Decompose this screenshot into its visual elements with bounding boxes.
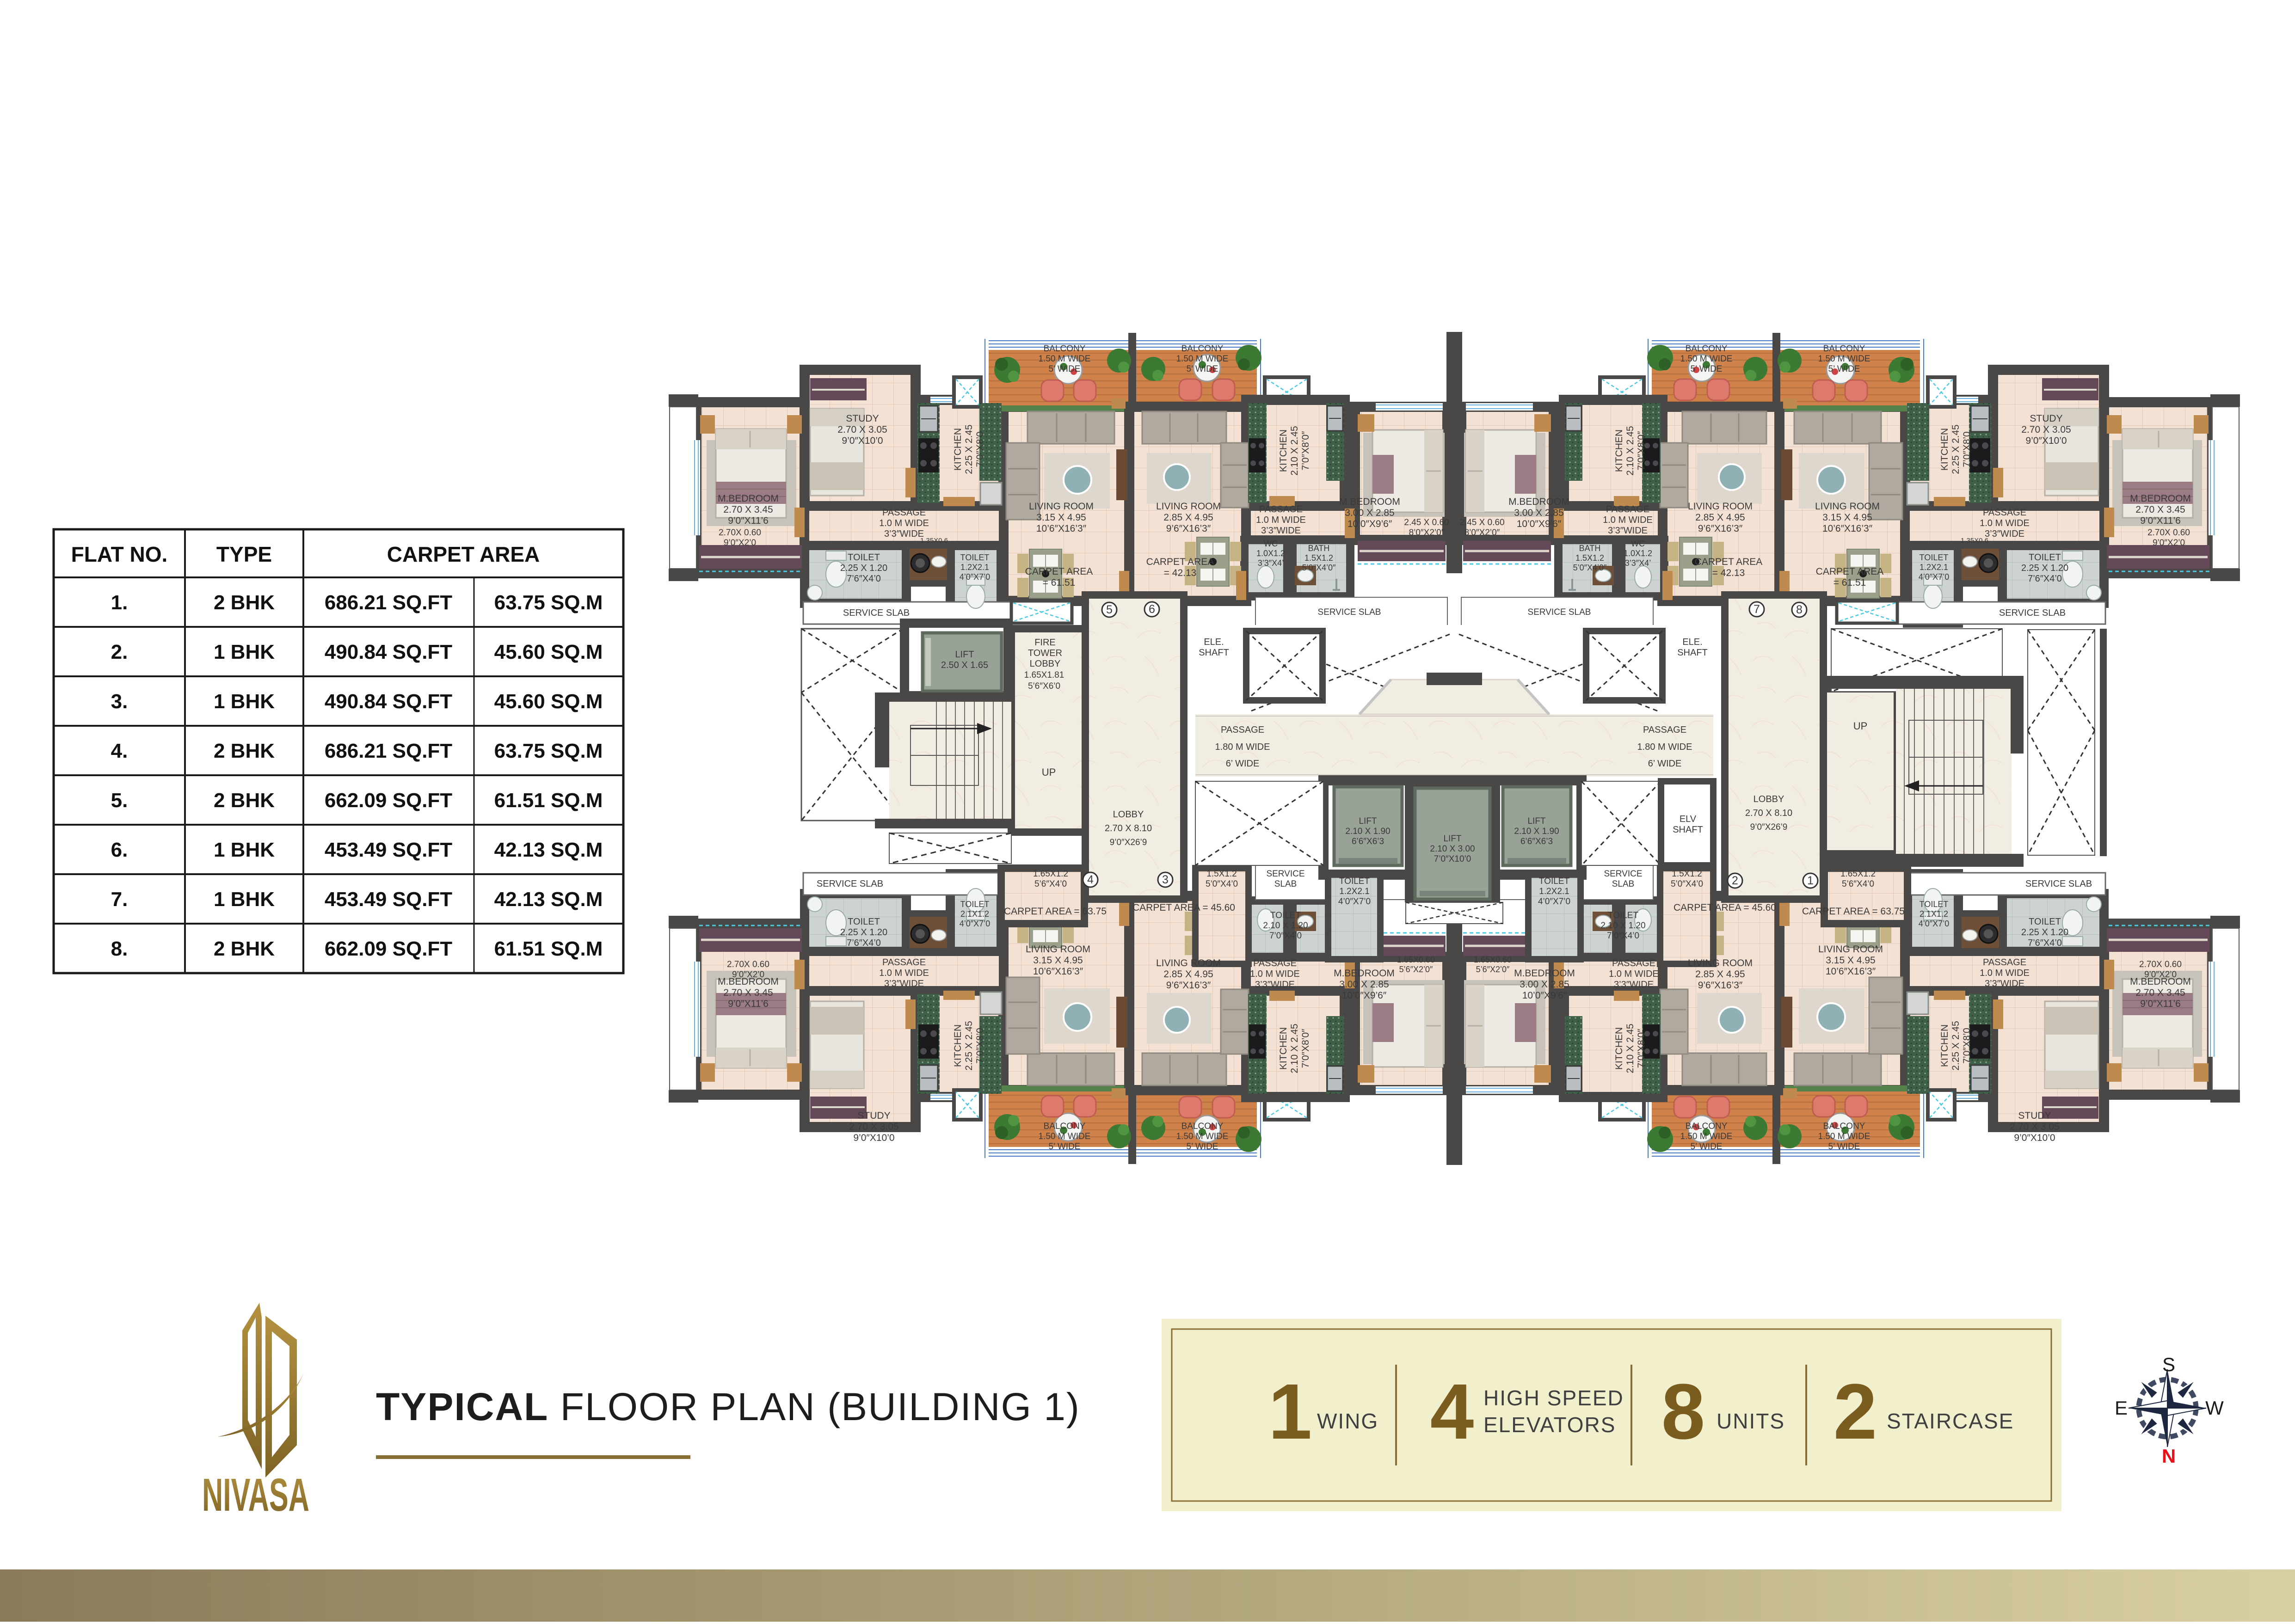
svg-text:KITCHEN2.10 X 2.457’0″X8’0″: KITCHEN2.10 X 2.457’0″X8’0″ — [1614, 426, 1647, 475]
svg-text:KITCHEN2.25 X 2.457’0″X8’0: KITCHEN2.25 X 2.457’0″X8’0 — [953, 1021, 985, 1070]
svg-text:FLAT NO.: FLAT NO. — [71, 542, 168, 566]
svg-text:1.: 1. — [111, 591, 128, 614]
svg-text:61.51 SQ.M: 61.51 SQ.M — [494, 789, 603, 812]
svg-text:PASSAGE1.0 M WIDE3’3″WIDE: PASSAGE1.0 M WIDE3’3″WIDE — [879, 508, 929, 539]
svg-text:PASSAGE: PASSAGE — [1643, 725, 1686, 735]
svg-text:SERVICE SLAB: SERVICE SLAB — [817, 879, 883, 889]
svg-text:HIGH SPEED: HIGH SPEED — [1483, 1386, 1624, 1410]
svg-text:SERVICE SLAB: SERVICE SLAB — [843, 608, 910, 618]
svg-text:42.13 SQ.M: 42.13 SQ.M — [494, 839, 603, 861]
svg-text:PASSAGE1.0 M WIDE3’3″WIDE: PASSAGE1.0 M WIDE3’3″WIDE — [879, 957, 929, 989]
svg-text:SERVICE SLAB: SERVICE SLAB — [1999, 608, 2066, 618]
svg-text:6’ WIDE: 6’ WIDE — [1648, 759, 1682, 769]
svg-text:8: 8 — [1796, 603, 1803, 616]
svg-text:5’6″X6’0: 5’6″X6’0 — [1028, 681, 1060, 691]
svg-text:PASSAGE1.0 M WIDE3’3″WIDE: PASSAGE1.0 M WIDE3’3″WIDE — [1980, 957, 2030, 989]
svg-text:1 BHK: 1 BHK — [214, 641, 275, 663]
svg-text:STAIRCASE: STAIRCASE — [1887, 1409, 2014, 1433]
svg-text:M.BEDROOM3.00 X 2.8510’0″X9’6″: M.BEDROOM3.00 X 2.8510’0″X9’6″ — [1508, 496, 1569, 529]
svg-text:2.70 X 8.10: 2.70 X 8.10 — [1105, 823, 1152, 833]
svg-text:2.70X 0.609’0″X2’0: 2.70X 0.609’0″X2’0 — [719, 528, 761, 548]
svg-text:PASSAGE1.0 M WIDE3’3″WIDE: PASSAGE1.0 M WIDE3’3″WIDE — [1603, 504, 1653, 536]
svg-text:5.: 5. — [111, 789, 128, 812]
svg-text:KITCHEN2.10 X 2.457’0″X8’0″: KITCHEN2.10 X 2.457’0″X8’0″ — [1278, 1023, 1311, 1073]
svg-text:2: 2 — [1732, 874, 1738, 887]
svg-text:662.09 SQ.FT: 662.09 SQ.FT — [325, 938, 452, 960]
svg-text:1.65X1.25’6″X4’0: 1.65X1.25’6″X4’0 — [1033, 869, 1068, 889]
svg-text:8: 8 — [1661, 1368, 1705, 1456]
svg-text:UNITS: UNITS — [1717, 1409, 1785, 1433]
svg-text:1.35X0.6: 1.35X0.6 — [1961, 537, 1988, 545]
svg-text:WING: WING — [1317, 1409, 1378, 1433]
svg-text:M.BEDROOM3.00 X 2.8510’0″X9’6″: M.BEDROOM3.00 X 2.8510’0″X9’6″ — [1334, 968, 1395, 1001]
svg-text:63.75 SQ.M: 63.75 SQ.M — [494, 591, 603, 614]
svg-text:PASSAGE1.0 M WIDE3’3″WIDE: PASSAGE1.0 M WIDE3’3″WIDE — [1256, 504, 1306, 536]
svg-text:3.: 3. — [111, 690, 128, 713]
svg-text:ELEVATORS: ELEVATORS — [1483, 1413, 1616, 1437]
svg-text:LIVING ROOM3.15 X 4.9510’6″X16: LIVING ROOM3.15 X 4.9510’6″X16’3″ — [1818, 944, 1883, 977]
svg-text:2 BHK: 2 BHK — [214, 938, 275, 960]
svg-text:63.75 SQ.M: 63.75 SQ.M — [494, 740, 603, 762]
svg-text:1.65X0.605’6″X2’0″: 1.65X0.605’6″X2’0″ — [1397, 955, 1435, 974]
svg-text:453.49 SQ.FT: 453.49 SQ.FT — [325, 839, 452, 861]
svg-text:9’0″X26’9: 9’0″X26’9 — [1750, 822, 1788, 832]
svg-text:1 BHK: 1 BHK — [214, 839, 275, 861]
svg-text:TOILET1.2X2.14’0″X7’0: TOILET1.2X2.14’0″X7’0 — [1538, 876, 1570, 907]
svg-text:1.65X1.81: 1.65X1.81 — [1024, 670, 1064, 680]
svg-text:PASSAGE: PASSAGE — [1221, 725, 1264, 735]
svg-text:1.5X1.25’0″X4’0: 1.5X1.25’0″X4’0 — [1671, 869, 1703, 889]
svg-text:2 BHK: 2 BHK — [214, 740, 275, 762]
svg-text:TOILET2.1X1.24’0″X7’0: TOILET2.1X1.24’0″X7’0 — [960, 900, 990, 928]
svg-text:PASSAGE1.0 M WIDE3’3″WIDE: PASSAGE1.0 M WIDE3’3″WIDE — [1609, 958, 1659, 990]
svg-text:1 BHK: 1 BHK — [214, 690, 275, 713]
svg-text:LOBBY: LOBBY — [1754, 794, 1784, 804]
svg-text:686.21 SQ.FT: 686.21 SQ.FT — [325, 591, 452, 614]
svg-text:S: S — [2162, 1354, 2175, 1375]
svg-text:CARPET AREA = 45.60: CARPET AREA = 45.60 — [1674, 902, 1776, 913]
svg-text:1.5X1.25’0″X4’0: 1.5X1.25’0″X4’0 — [1206, 869, 1238, 889]
svg-text:4.: 4. — [111, 740, 128, 762]
svg-text:KITCHEN2.25 X 2.457’0″X8’0: KITCHEN2.25 X 2.457’0″X8’0 — [953, 424, 985, 474]
svg-text:KITCHEN2.10 X 2.457’0″X8’0″: KITCHEN2.10 X 2.457’0″X8’0″ — [1614, 1023, 1647, 1073]
svg-text:61.51 SQ.M: 61.51 SQ.M — [494, 938, 603, 960]
svg-text:SERVICE SLAB: SERVICE SLAB — [1528, 607, 1591, 617]
svg-text:3: 3 — [1162, 873, 1169, 886]
svg-text:CARPET AREA = 45.60: CARPET AREA = 45.60 — [1132, 902, 1235, 913]
svg-text:4: 4 — [1087, 873, 1094, 886]
svg-text:CARPET AREA = 63.75: CARPET AREA = 63.75 — [1004, 906, 1107, 917]
svg-text:2 BHK: 2 BHK — [214, 591, 275, 614]
svg-text:PASSAGE1.0 M WIDE3’3″WIDE: PASSAGE1.0 M WIDE3’3″WIDE — [1980, 508, 2030, 539]
svg-text:W: W — [2205, 1397, 2224, 1419]
svg-text:5: 5 — [1106, 603, 1113, 616]
svg-text:TYPICAL FLOOR PLAN (BUILDING 1: TYPICAL FLOOR PLAN (BUILDING 1) — [376, 1385, 1080, 1428]
svg-text:KITCHEN2.25 X 2.457’0″X8’0: KITCHEN2.25 X 2.457’0″X8’0 — [1939, 1021, 1972, 1070]
svg-text:CARPET AREA = 63.75: CARPET AREA = 63.75 — [1802, 906, 1905, 917]
svg-text:453.49 SQ.FT: 453.49 SQ.FT — [325, 888, 452, 911]
svg-text:LOBBY: LOBBY — [1113, 809, 1144, 820]
svg-text:1: 1 — [1268, 1368, 1312, 1456]
svg-text:M.BEDROOM3.00 X 2.8510’0″X9’6″: M.BEDROOM3.00 X 2.8510’0″X9’6″ — [1339, 496, 1400, 529]
svg-text:2.70X 0.609’0″X2’0: 2.70X 0.609’0″X2’0 — [2147, 528, 2190, 548]
svg-text:686.21 SQ.FT: 686.21 SQ.FT — [325, 740, 452, 762]
svg-text:CARPET AREA: CARPET AREA — [387, 542, 540, 566]
svg-text:6’ WIDE: 6’ WIDE — [1226, 759, 1260, 769]
svg-text:7: 7 — [1754, 603, 1760, 616]
svg-text:1: 1 — [1807, 874, 1814, 887]
svg-text:TYPE: TYPE — [216, 542, 272, 566]
svg-text:KITCHEN2.25 X 2.457’0″X8’0: KITCHEN2.25 X 2.457’0″X8’0 — [1939, 424, 1972, 474]
svg-text:7.: 7. — [111, 888, 128, 911]
svg-text:490.84 SQ.FT: 490.84 SQ.FT — [325, 641, 452, 663]
svg-text:9’0″X26’9: 9’0″X26’9 — [1110, 838, 1147, 847]
svg-text:LIVING ROOM3.15 X 4.9510’6″X16: LIVING ROOM3.15 X 4.9510’6″X16’3″ — [1815, 501, 1880, 534]
svg-text:NIVASA: NIVASA — [202, 1469, 309, 1521]
svg-text:2: 2 — [1834, 1368, 1877, 1456]
svg-text:UP: UP — [1042, 766, 1056, 778]
svg-text:2 BHK: 2 BHK — [214, 789, 275, 812]
svg-text:SERVICE SLAB: SERVICE SLAB — [1318, 607, 1381, 617]
svg-text:2.70 X 8.10: 2.70 X 8.10 — [1745, 808, 1792, 818]
svg-text:1.35X0.6: 1.35X0.6 — [920, 537, 948, 545]
svg-text:490.84 SQ.FT: 490.84 SQ.FT — [325, 690, 452, 713]
svg-text:N: N — [2162, 1445, 2176, 1467]
svg-text:6.: 6. — [111, 839, 128, 861]
svg-text:TOILET1.2X2.14’0″X7’0: TOILET1.2X2.14’0″X7’0 — [1338, 876, 1371, 907]
svg-text:2.45 X 0.608’0″X2’0″: 2.45 X 0.608’0″X2’0″ — [1459, 518, 1504, 538]
svg-text:42.13 SQ.M: 42.13 SQ.M — [494, 888, 603, 911]
svg-text:1 BHK: 1 BHK — [214, 888, 275, 911]
svg-text:1.65X1.25’6″X4’0: 1.65X1.25’6″X4’0 — [1840, 869, 1876, 889]
svg-text:UP: UP — [1853, 720, 1868, 732]
svg-text:LIVING ROOM3.15 X 4.9510’6″X16: LIVING ROOM3.15 X 4.9510’6″X16’3″ — [1029, 501, 1094, 534]
svg-text:SERVICE SLAB: SERVICE SLAB — [2025, 879, 2092, 889]
svg-text:6: 6 — [1149, 603, 1155, 616]
svg-text:4: 4 — [1430, 1368, 1474, 1456]
svg-text:KITCHEN2.10 X 2.457’0″X8’0″: KITCHEN2.10 X 2.457’0″X8’0″ — [1278, 426, 1311, 475]
svg-text:662.09 SQ.FT: 662.09 SQ.FT — [325, 789, 452, 812]
svg-text:TOILET1.2X2.14’0″X7’0: TOILET1.2X2.14’0″X7’0 — [1919, 553, 1949, 582]
svg-text:TOILET2.1X1.24’0″X7’0: TOILET2.1X1.24’0″X7’0 — [1919, 900, 1949, 928]
svg-text:1.65X0.605’6″X2’0″: 1.65X0.605’6″X2’0″ — [1474, 955, 1512, 974]
svg-text:LIVING ROOM3.15 X 4.9510’6″X16: LIVING ROOM3.15 X 4.9510’6″X16’3″ — [1026, 944, 1090, 977]
svg-text:1.80 M WIDE: 1.80 M WIDE — [1215, 742, 1270, 752]
svg-text:M.BEDROOM3.00 X 2.8510’0″X9’6″: M.BEDROOM3.00 X 2.8510’0″X9’6″ — [1514, 968, 1575, 1001]
svg-text:2.45 X 0.608’0″X2’0″: 2.45 X 0.608’0″X2’0″ — [1404, 518, 1449, 538]
svg-text:TOILET1.2X2.14’0″X7’0: TOILET1.2X2.14’0″X7’0 — [960, 553, 990, 582]
svg-text:PASSAGE1.0 M WIDE3’3″WIDE: PASSAGE1.0 M WIDE3’3″WIDE — [1250, 958, 1300, 990]
svg-text:2.: 2. — [111, 641, 128, 663]
svg-text:E: E — [2115, 1397, 2128, 1419]
svg-text:45.60 SQ.M: 45.60 SQ.M — [494, 690, 603, 713]
svg-text:45.60 SQ.M: 45.60 SQ.M — [494, 641, 603, 663]
svg-text:8.: 8. — [111, 938, 128, 960]
svg-text:1.80 M WIDE: 1.80 M WIDE — [1637, 742, 1692, 752]
